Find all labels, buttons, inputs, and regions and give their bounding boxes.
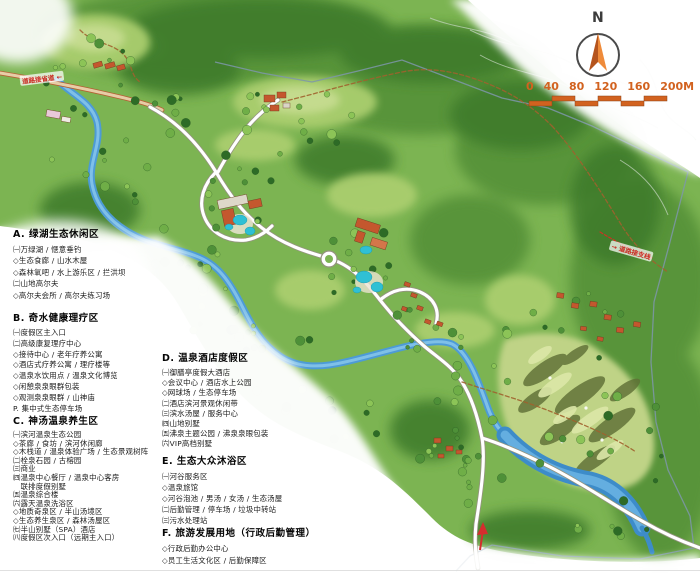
tree xyxy=(426,449,432,455)
tree xyxy=(619,496,628,505)
tree xyxy=(100,182,109,191)
tree xyxy=(60,63,66,69)
tree xyxy=(70,105,76,111)
tree xyxy=(646,427,653,434)
tree xyxy=(448,328,457,337)
tree xyxy=(160,224,169,233)
tree xyxy=(242,107,249,114)
tree xyxy=(475,453,481,459)
tree xyxy=(452,372,460,380)
tree xyxy=(644,527,649,532)
tree xyxy=(181,118,190,127)
tree xyxy=(349,112,355,118)
scale-label: 200M xyxy=(660,80,694,93)
roundabout xyxy=(321,251,337,267)
compass xyxy=(577,33,619,76)
tree xyxy=(497,474,506,483)
tree xyxy=(167,95,176,104)
tree xyxy=(503,329,512,338)
tree xyxy=(434,398,441,405)
tree xyxy=(386,262,392,268)
tree xyxy=(252,168,259,175)
tree xyxy=(458,468,467,477)
tree xyxy=(221,151,230,160)
tree xyxy=(332,290,337,295)
tree xyxy=(351,266,357,272)
tree xyxy=(172,109,179,116)
tree xyxy=(455,436,459,440)
tree xyxy=(617,311,624,318)
scale-label: 80 xyxy=(569,80,584,93)
tree xyxy=(132,199,138,205)
tree xyxy=(608,448,614,454)
tree xyxy=(205,191,212,198)
tree xyxy=(329,273,335,279)
tree xyxy=(306,336,313,343)
tree xyxy=(613,392,622,401)
tree xyxy=(79,60,86,67)
tree xyxy=(467,485,472,490)
tree xyxy=(407,307,412,312)
scale-bar-labels: 04080120160200M xyxy=(526,80,694,93)
tree xyxy=(198,262,203,267)
tree xyxy=(215,252,220,257)
tree xyxy=(406,345,410,349)
tree xyxy=(559,435,566,442)
tree xyxy=(576,435,585,444)
tree xyxy=(602,392,609,399)
tree xyxy=(466,480,470,484)
tree xyxy=(268,178,275,185)
resort-master-plan: N 04080120160200M 道路接省道 ← → 道路接支线 A. 绿湖生… xyxy=(0,0,700,574)
tree xyxy=(416,454,425,463)
tree xyxy=(334,140,340,146)
tree xyxy=(87,34,96,43)
tree xyxy=(299,118,305,124)
tree xyxy=(99,148,106,155)
tree xyxy=(251,324,255,328)
tree xyxy=(604,411,613,420)
tree xyxy=(330,237,338,245)
water-park xyxy=(353,271,383,293)
tree xyxy=(49,157,54,162)
tree xyxy=(83,172,89,178)
tree xyxy=(247,93,254,100)
tree xyxy=(379,228,388,237)
tree xyxy=(409,339,413,343)
tree xyxy=(459,334,464,339)
tree xyxy=(166,129,175,138)
tree xyxy=(459,445,464,450)
tree xyxy=(207,245,216,254)
scale-label: 120 xyxy=(594,80,617,93)
tree xyxy=(393,311,402,320)
tree xyxy=(132,192,137,197)
tree xyxy=(488,416,497,425)
tree xyxy=(345,249,352,256)
tree xyxy=(610,524,614,528)
tree xyxy=(364,410,370,416)
tree xyxy=(124,184,129,189)
tree xyxy=(659,454,663,458)
tree xyxy=(414,345,421,352)
tree xyxy=(327,130,337,140)
tree xyxy=(383,276,387,280)
tree xyxy=(212,224,219,231)
scale-label: 160 xyxy=(627,80,650,93)
tree xyxy=(102,158,106,162)
tree xyxy=(119,83,123,87)
tree xyxy=(307,138,313,144)
tree xyxy=(209,206,215,212)
tree xyxy=(543,325,548,330)
north-label: N xyxy=(592,10,604,26)
tree xyxy=(613,527,622,536)
tree xyxy=(463,463,467,467)
tree xyxy=(121,49,125,53)
tree xyxy=(123,138,128,143)
tree xyxy=(152,101,158,107)
tree xyxy=(433,444,437,448)
tree xyxy=(458,345,463,350)
tree xyxy=(95,39,104,48)
tree xyxy=(296,336,305,345)
tree xyxy=(131,97,139,105)
tree xyxy=(453,427,459,433)
tree xyxy=(492,364,497,369)
tree xyxy=(453,386,462,395)
tree xyxy=(242,125,251,134)
tree xyxy=(278,151,283,156)
tree xyxy=(255,92,259,96)
tree xyxy=(224,287,228,291)
tree xyxy=(202,264,211,273)
tree xyxy=(242,180,248,186)
tree xyxy=(652,403,659,410)
tree xyxy=(296,104,302,110)
tree xyxy=(451,399,458,406)
scale-label: 0 xyxy=(526,80,534,93)
tree xyxy=(263,107,269,113)
tree xyxy=(545,432,554,441)
tree xyxy=(53,65,58,70)
tree xyxy=(530,309,537,316)
tree xyxy=(373,430,380,437)
scale-label: 40 xyxy=(544,80,559,93)
tree xyxy=(255,219,260,224)
tree xyxy=(107,58,111,62)
tree xyxy=(429,454,434,459)
tree xyxy=(603,310,607,314)
tree xyxy=(536,459,544,467)
tree xyxy=(464,499,473,508)
tree xyxy=(587,451,594,458)
tree xyxy=(453,361,462,370)
tree xyxy=(324,91,330,97)
tree xyxy=(210,178,216,184)
tree xyxy=(586,292,590,296)
tree xyxy=(126,56,135,65)
tree xyxy=(300,129,307,136)
tree xyxy=(237,167,241,171)
tree xyxy=(653,478,658,483)
tree xyxy=(597,355,602,360)
tree xyxy=(465,457,471,463)
tree xyxy=(558,327,564,333)
tree xyxy=(504,378,511,385)
tree xyxy=(144,163,152,171)
tree xyxy=(82,112,87,117)
tree xyxy=(367,400,374,407)
tree xyxy=(575,524,579,528)
